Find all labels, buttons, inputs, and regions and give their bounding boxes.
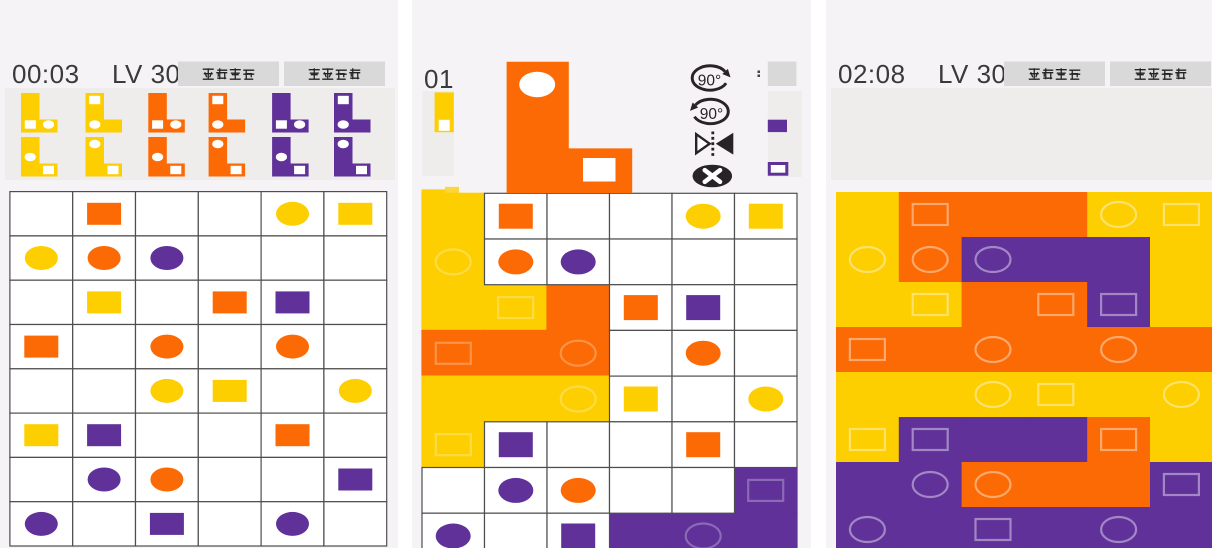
svg-text:01: 01	[424, 64, 454, 94]
svg-text:00:03: 00:03	[12, 59, 80, 89]
svg-text:LV 30: LV 30	[112, 59, 181, 89]
svg-text:LV 30: LV 30	[938, 59, 1007, 89]
svg-text:02:08: 02:08	[838, 59, 906, 89]
svg-text:90°: 90°	[700, 106, 723, 123]
svg-text:90°: 90°	[698, 73, 721, 90]
